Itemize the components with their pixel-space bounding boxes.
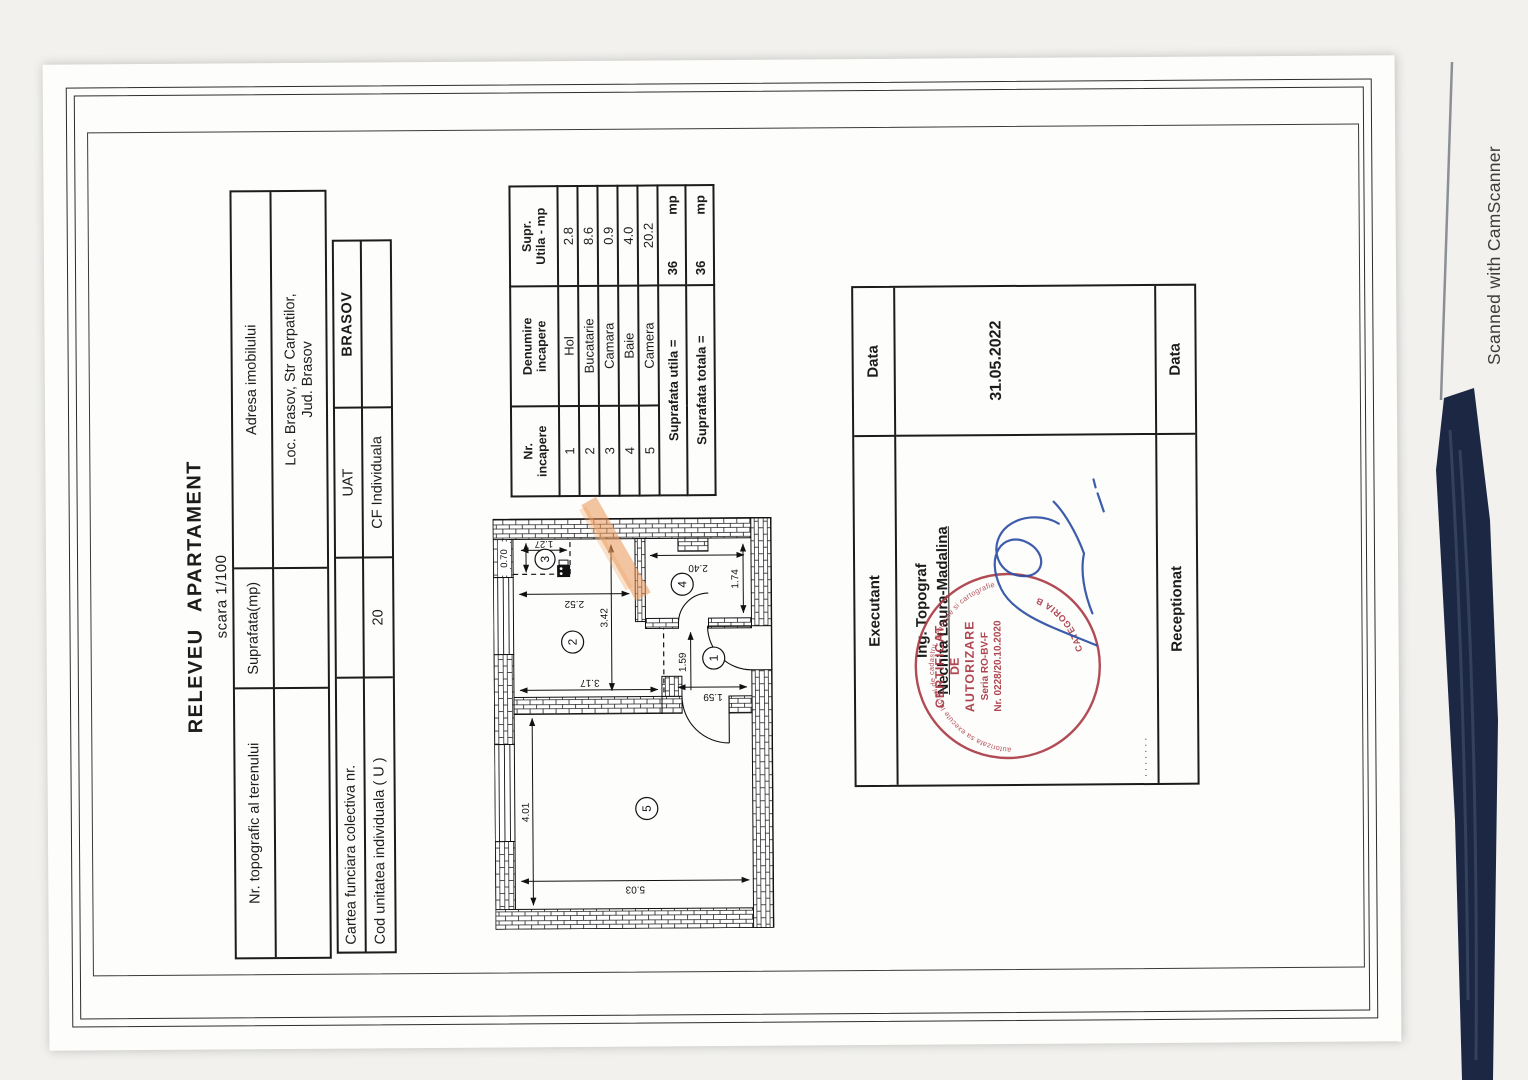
row2-supr: 8.6 bbox=[577, 186, 598, 286]
row4-name: Baie bbox=[618, 286, 639, 406]
room-areas-table: Nr.incapere Denumireincapere Supr.Utila … bbox=[508, 184, 716, 497]
table-row: 3 Camara 0.9 bbox=[597, 186, 619, 496]
paper-sheet: RELEVEU APARTAMENT scara 1/100 Nr. topog… bbox=[43, 55, 1402, 1050]
imobil-address: Loc. Brasov, Str Carpatilor, Jud. Brasov bbox=[271, 192, 327, 567]
header-supr: Supr.Utila - mp bbox=[509, 186, 558, 286]
header-nr: Nr.incapere bbox=[511, 406, 560, 496]
cf-individuala-value bbox=[362, 241, 391, 406]
denim-fabric-edge bbox=[1436, 388, 1498, 1080]
imobil-col2-header: Suprafata(mp) bbox=[234, 567, 275, 687]
total-utila-label: Suprafata utila = bbox=[658, 285, 687, 495]
table-header-row: Nr.incapere Denumireincapere Supr.Utila … bbox=[509, 186, 559, 496]
total-totala-value: 36mp bbox=[685, 185, 714, 285]
row5-nr: 5 bbox=[639, 405, 660, 495]
table-row: 4 Baie 4.0 bbox=[617, 186, 639, 496]
row1-nr: 1 bbox=[559, 406, 580, 496]
scanned-document: RELEVEU APARTAMENT scara 1/100 Nr. topog… bbox=[0, 0, 1528, 1080]
paper-edge-crease bbox=[1441, 62, 1452, 400]
table-row: 1 Hol 2.8 bbox=[557, 186, 579, 496]
total-totala-label: Suprafata totala = bbox=[686, 285, 715, 495]
camscanner-watermark: Scanned with CamScanner bbox=[1484, 146, 1505, 365]
imobil-col1-value bbox=[275, 687, 330, 957]
uat-value: BRASOV bbox=[334, 242, 363, 407]
table-row: 2 Bucatarie 8.6 bbox=[577, 186, 599, 496]
cf-individuala-label: CF Individuala bbox=[363, 406, 392, 556]
row1-supr: 2.8 bbox=[557, 186, 578, 286]
row3-supr: 0.9 bbox=[597, 186, 618, 286]
title-block: RELEVEU APARTAMENT scara 1/100 bbox=[182, 313, 232, 879]
cf-row2-value: 20 bbox=[364, 556, 393, 676]
row4-nr: 4 bbox=[619, 406, 640, 496]
total-utila-row: Suprafata utila = 36mp bbox=[657, 185, 687, 495]
cf-row2-label: Cod unitatea individuala ( U ) bbox=[365, 676, 395, 951]
executant-role: Ing. Topograf bbox=[913, 563, 931, 658]
row5-supr: 20.2 bbox=[637, 185, 658, 285]
row1-name: Hol bbox=[558, 286, 579, 406]
executant-header: Executant bbox=[854, 435, 898, 785]
receptionat-label: Receptionat bbox=[1157, 433, 1197, 783]
header-denumire: Denumireincapere bbox=[510, 286, 559, 406]
address-line1: Loc. Brasov, Str Carpatilor, bbox=[282, 293, 300, 465]
total-totala-row: Suprafata totala = 36mp bbox=[685, 185, 715, 495]
row4-supr: 4.0 bbox=[617, 186, 638, 286]
address-line2: Jud. Brasov bbox=[299, 293, 317, 465]
executant-name: Nechita Laura-Madalina bbox=[934, 526, 952, 695]
row3-nr: 3 bbox=[599, 406, 620, 496]
document-title: RELEVEU APARTAMENT bbox=[182, 314, 209, 880]
receptionat-data-label: Data bbox=[1156, 286, 1195, 433]
executant-table: Executant Data Ing. Topograf Nechita Lau… bbox=[851, 284, 1199, 787]
cf-row1-label: Cartea funciara colectiva nr. bbox=[337, 676, 367, 951]
imobil-col2-value bbox=[274, 567, 328, 687]
cf-row1-value bbox=[336, 556, 365, 676]
row2-nr: 2 bbox=[579, 406, 600, 496]
imobil-col3-header: Adresa imobilului bbox=[231, 192, 274, 567]
row2-name: Bucatarie bbox=[578, 286, 599, 406]
dotted-marks: ....... bbox=[1137, 735, 1149, 777]
uat-label: UAT bbox=[335, 407, 364, 557]
denim-texture bbox=[1450, 430, 1476, 1060]
date-value: 31.05.2022 bbox=[895, 286, 1157, 435]
table-row: 5 Camera 20.2 bbox=[637, 185, 659, 495]
row5-name: Camera bbox=[638, 285, 659, 405]
total-utila-value: 36mp bbox=[657, 185, 686, 285]
data-header: Data bbox=[853, 288, 896, 435]
row3-name: Camara bbox=[598, 286, 619, 406]
table-carte-funciara: Cartea funciara colectiva nr. UAT BRASOV… bbox=[332, 239, 397, 953]
executant-cell: Ing. Topograf Nechita Laura-Madalina bbox=[896, 433, 1159, 785]
imobil-col1-header: Nr. topografic al terenului bbox=[235, 687, 277, 957]
table-imobil: Nr. topografic al terenului Suprafata(mp… bbox=[229, 190, 331, 960]
